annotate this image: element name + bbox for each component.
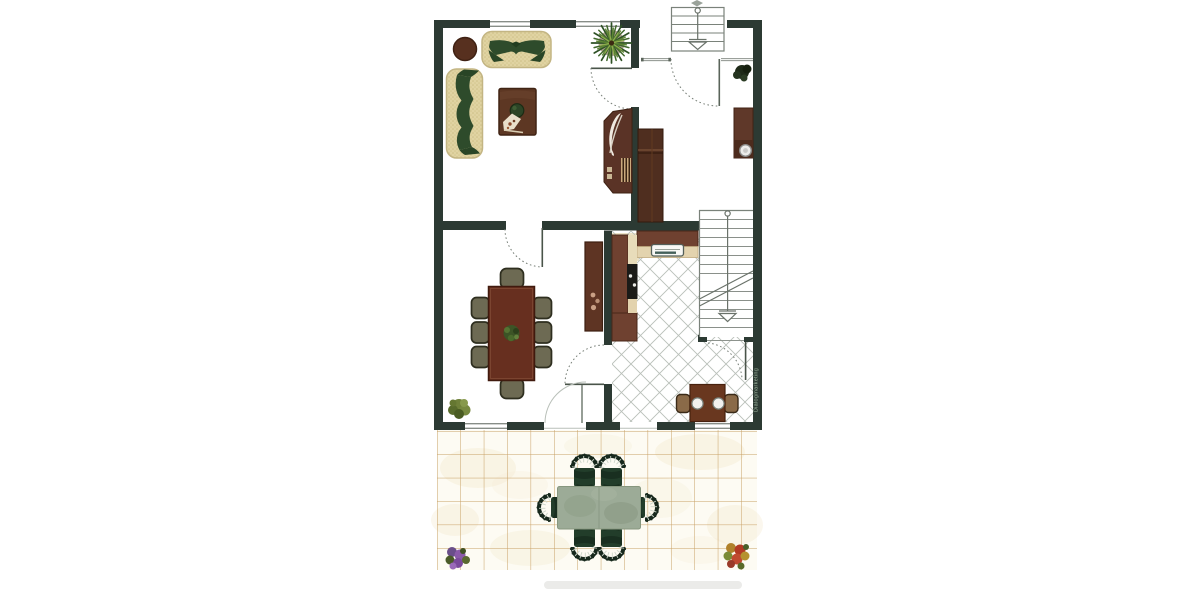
svg-text:Dialogmarketing: Dialogmarketing <box>754 368 760 412</box>
